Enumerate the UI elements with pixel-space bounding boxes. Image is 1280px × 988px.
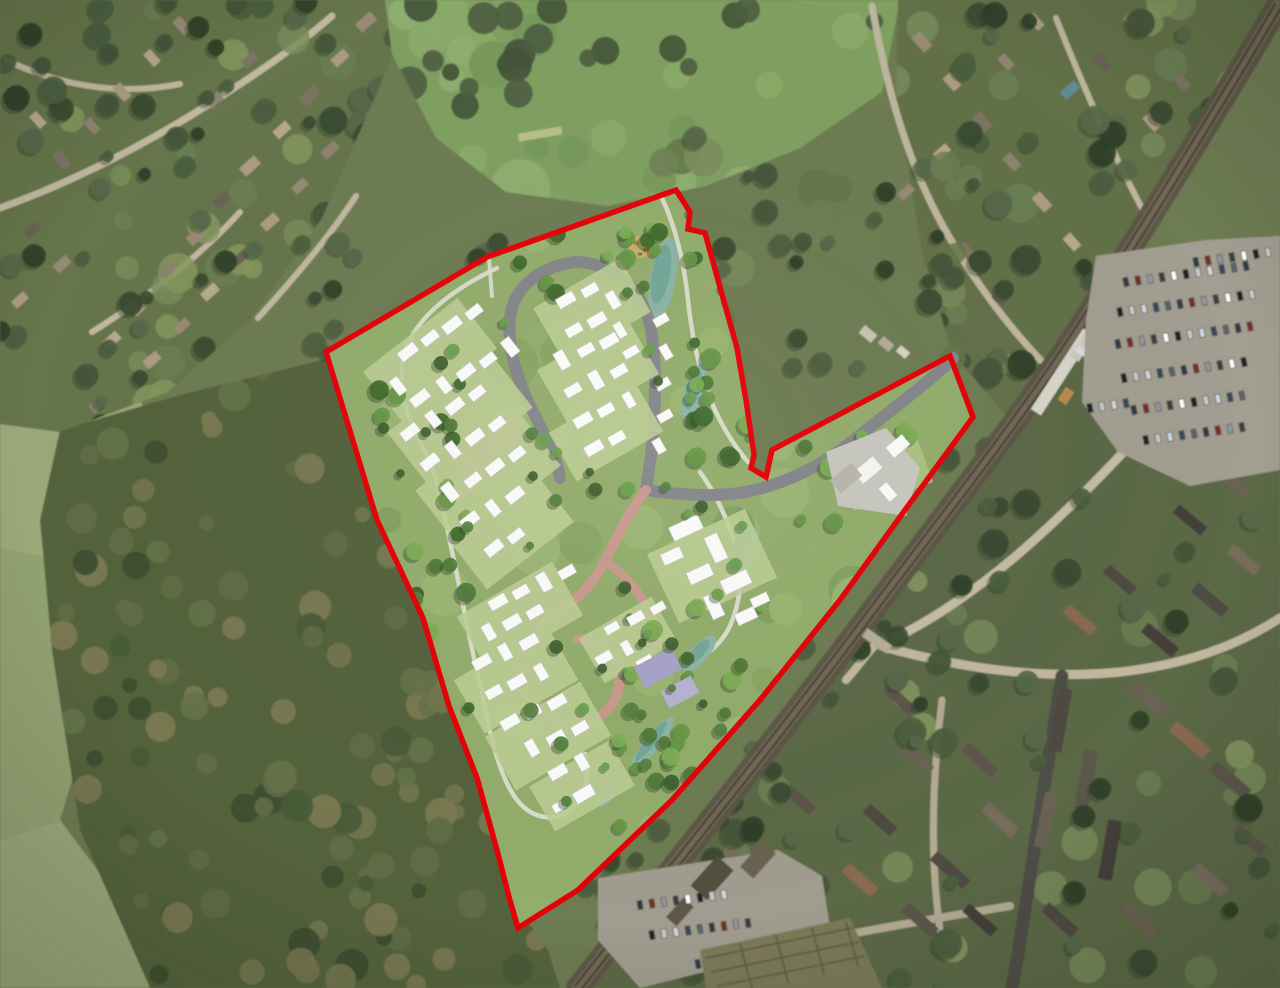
map-canvas <box>0 0 1280 988</box>
photo-vignette <box>0 0 1280 988</box>
aerial-masterplan-image <box>0 0 1280 988</box>
